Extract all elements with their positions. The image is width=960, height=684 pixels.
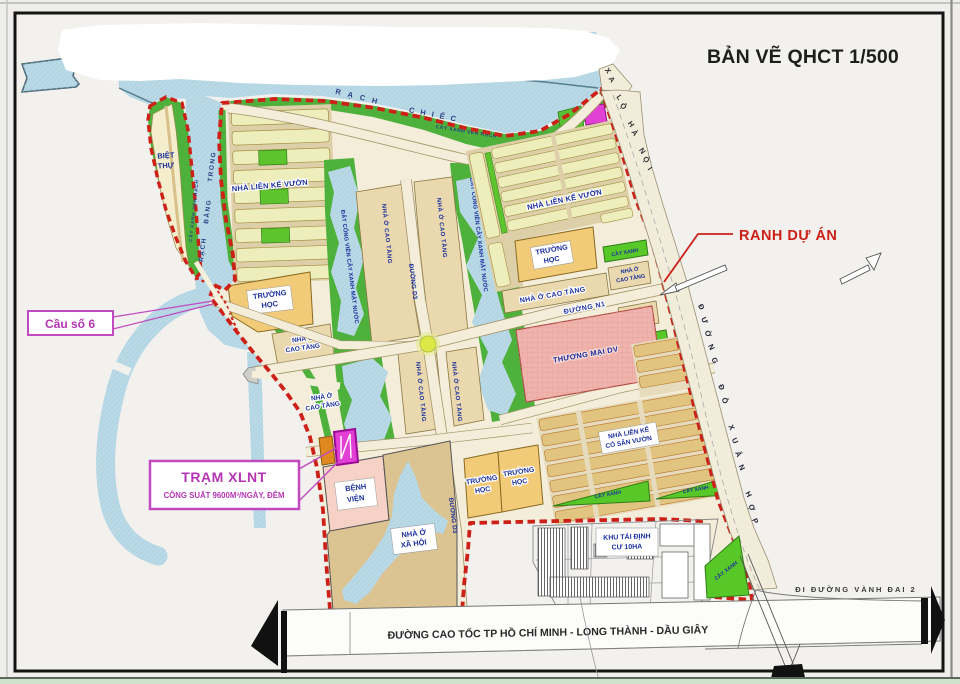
svg-text:RANH DỰ ÁN: RANH DỰ ÁN — [739, 227, 837, 244]
svg-text:BẢN VẼ QHCT 1/500: BẢN VẼ QHCT 1/500 — [707, 45, 899, 68]
svg-text:THỰ: THỰ — [157, 160, 175, 170]
svg-text:ĐI ĐƯỜNG VÀNH ĐAI 2: ĐI ĐƯỜNG VÀNH ĐAI 2 — [795, 585, 916, 594]
svg-text:TRẠM XLNT: TRẠM XLNT — [181, 469, 266, 485]
svg-text:BIỆT: BIỆT — [157, 150, 175, 160]
svg-text:CÔNG SUẤT 9600M³/NGÀY, ĐÊM: CÔNG SUẤT 9600M³/NGÀY, ĐÊM — [164, 490, 285, 500]
svg-text:CƯ 10HA: CƯ 10HA — [611, 543, 642, 551]
svg-text:Cầu số 6: Cầu số 6 — [45, 317, 95, 331]
